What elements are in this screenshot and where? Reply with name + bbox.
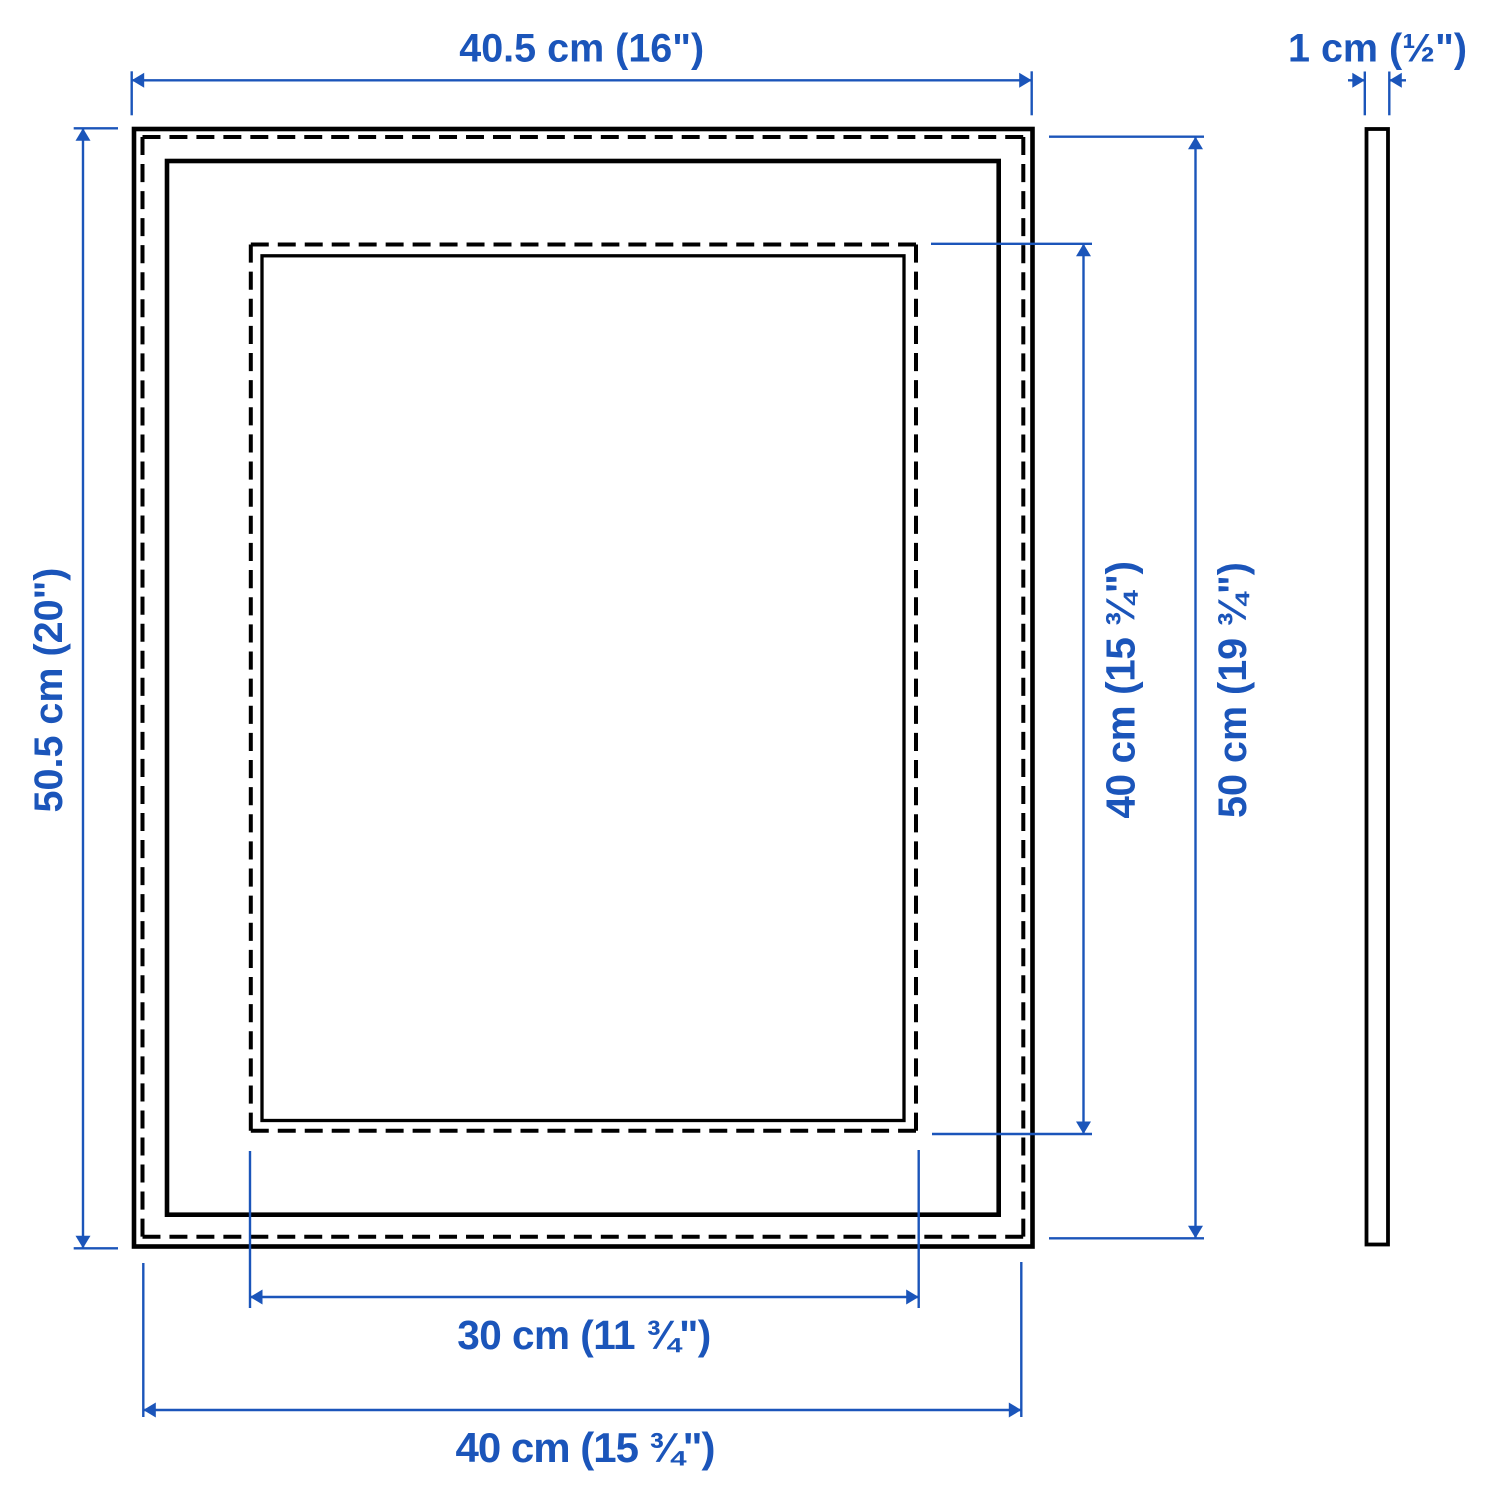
svg-text:40 cm (15 ¾"): 40 cm (15 ¾") [1097, 561, 1143, 818]
svg-text:50.5 cm (20"): 50.5 cm (20") [27, 568, 71, 813]
svg-text:30 cm (11 ¾"): 30 cm (11 ¾") [457, 1312, 711, 1358]
svg-text:1 cm (½"): 1 cm (½") [1288, 26, 1467, 70]
svg-text:40 cm (15 ¾"): 40 cm (15 ¾") [455, 1424, 714, 1471]
svg-text:50 cm (19 ¾"): 50 cm (19 ¾") [1211, 562, 1255, 818]
svg-text:40.5 cm (16"): 40.5 cm (16") [459, 26, 704, 70]
